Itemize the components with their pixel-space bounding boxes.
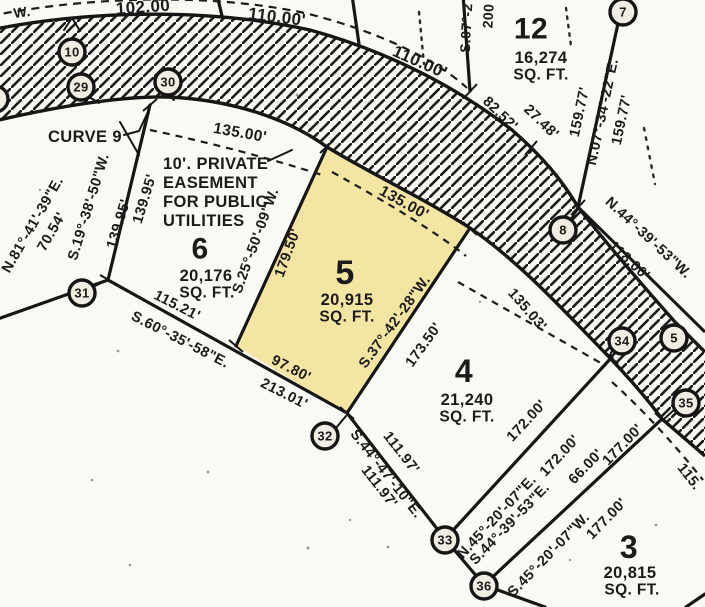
marker-33-number: 33 [437,533,452,548]
lot5-sqft: SQ. FT. [319,309,374,326]
lot5-number: 5 [335,254,354,292]
marker-10: 10 [59,39,85,65]
marker-10-number: 10 [64,45,79,60]
marker-30-number: 30 [160,75,175,90]
easement-line-3: FOR PUBLIC [163,193,268,211]
marker-8: 8 [550,217,576,243]
easement-line-4: UTILITIES [163,212,245,230]
marker-31: 31 [69,280,95,306]
lot4-number: 4 [455,353,473,389]
marker-32-number: 32 [317,429,332,444]
marker-5-number: 5 [670,331,678,346]
marker-33: 33 [432,527,458,553]
dim-200-partial: 200 [479,3,496,28]
marker-35: 35 [673,390,699,416]
lot3-number: 3 [620,529,638,565]
lot6-number: 6 [191,233,208,266]
easement-line-1: 10'. PRIVATE [163,155,268,173]
marker-8-number: 8 [559,223,567,238]
marker-36: 36 [471,573,497,599]
lot4-sqft: SQ. FT. [439,409,494,426]
marker-29: 29 [68,74,94,100]
marker-34-number: 34 [614,334,630,349]
marker-7-number: 7 [619,5,627,20]
fragment-w: W. [12,3,31,21]
marker-29-number: 29 [73,80,88,95]
lot3-sqft: SQ. FT. [604,582,659,599]
lot12-area: 16,274 [515,49,568,67]
lot6-area: 20,176 [180,267,233,285]
lot6-sqft: SQ. FT. [179,285,234,302]
easement-line-2: EASEMENT [163,174,258,192]
lot12-sqft: SQ. FT. [513,67,568,84]
marker-30: 30 [155,69,181,95]
marker-31-number: 31 [74,286,89,301]
marker-34: 34 [609,328,635,354]
lot4-area: 21,240 [441,391,494,409]
lot3-area: 20,815 [604,564,657,582]
lot5-area: 20,915 [321,291,374,309]
lot12-number: 12 [514,13,548,46]
plat-map-svg: W.102.00110.00'110.00'S.07°-22001216,274… [0,0,705,607]
bearing-s07-partial: S.07°-2 [457,3,476,53]
plat-map-scan: W.102.00110.00'110.00'S.07°-22001216,274… [0,0,705,607]
curve-9: CURVE 9 [48,128,122,146]
marker-36-number: 36 [476,579,491,594]
marker-32: 32 [312,423,338,449]
marker-5: 5 [661,325,687,351]
marker-7: 7 [610,0,636,25]
marker-35-number: 35 [678,396,693,411]
